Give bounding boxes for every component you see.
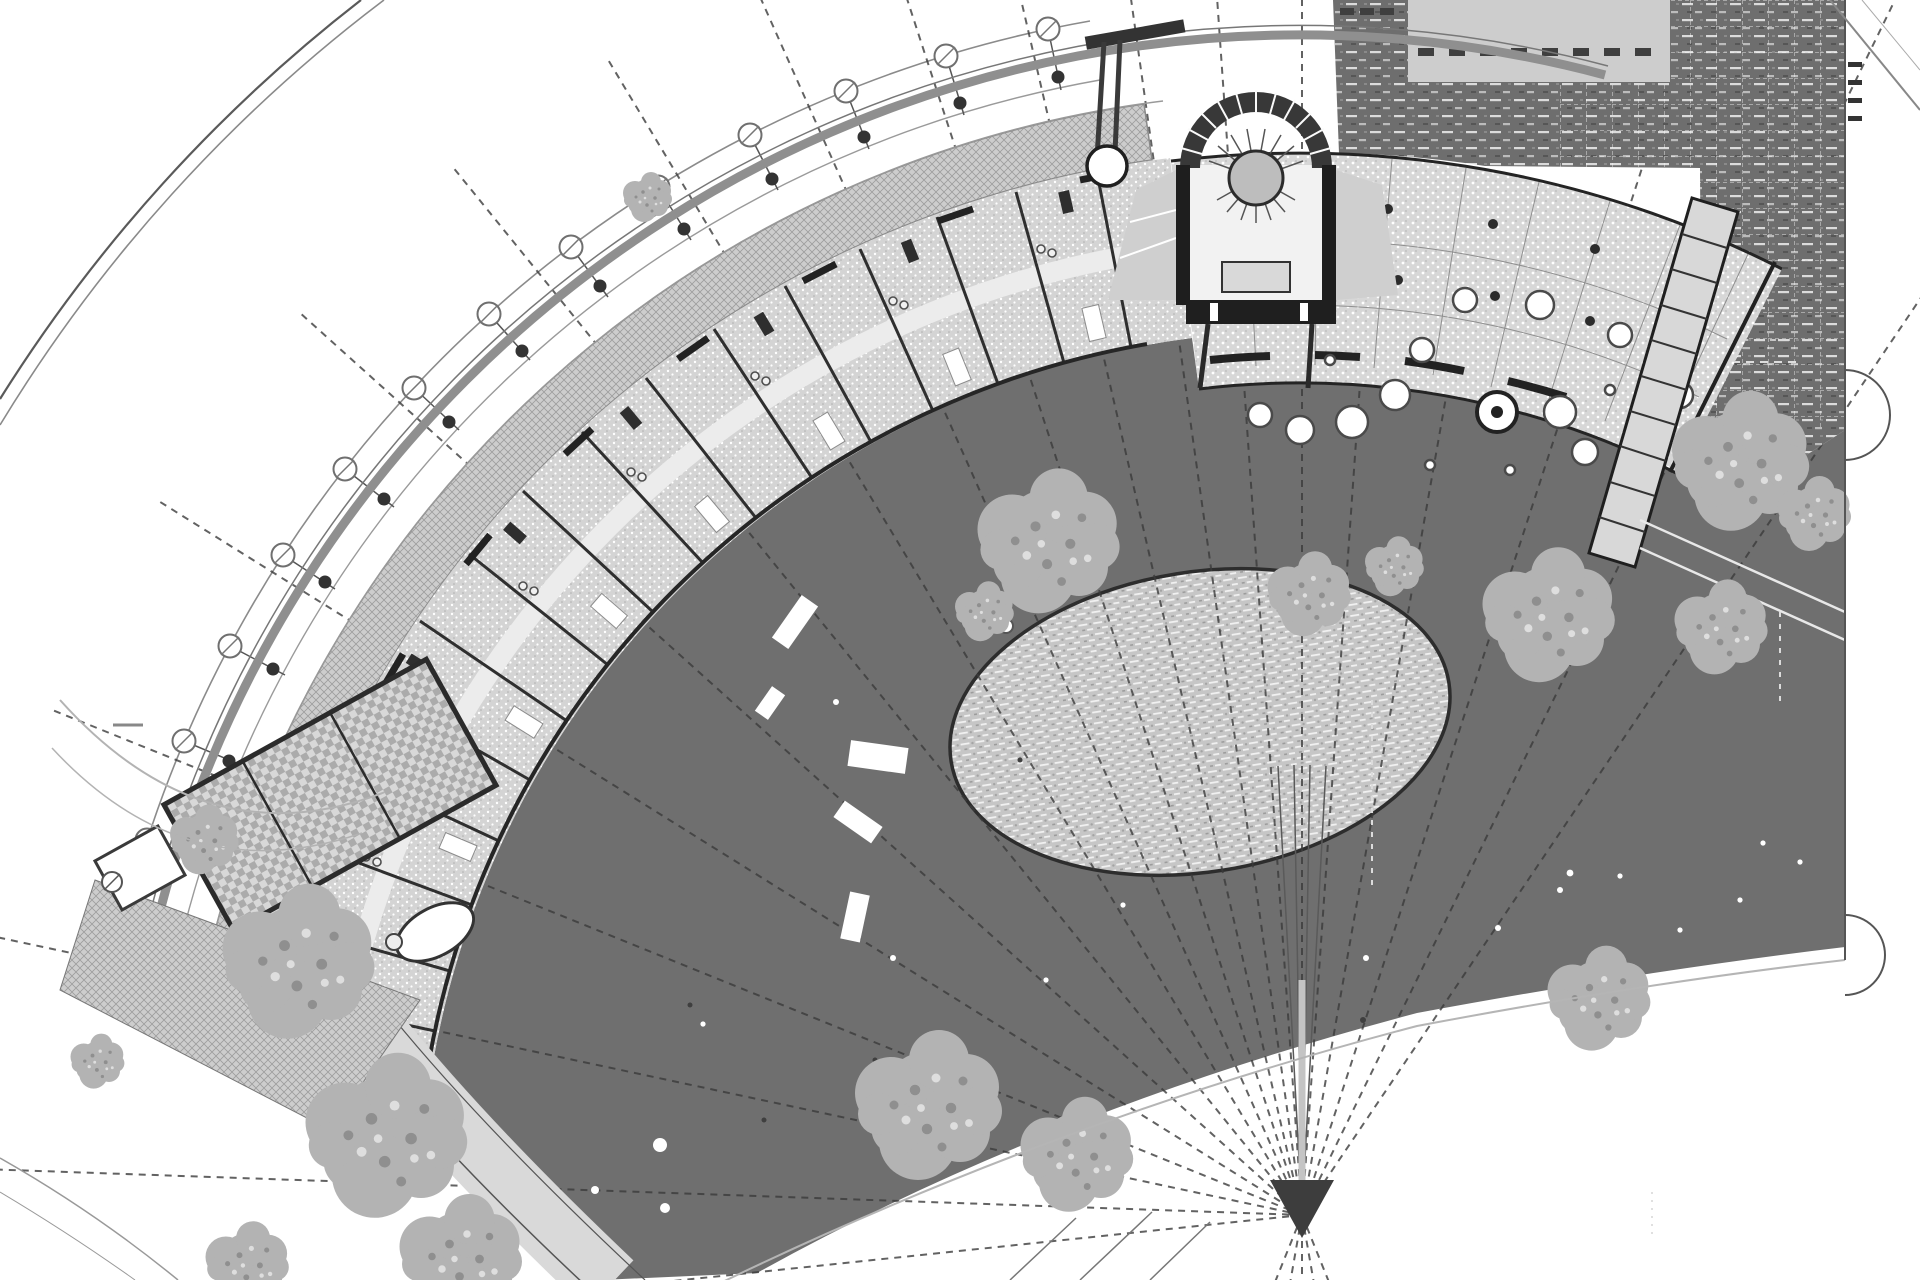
target-circle-dot xyxy=(1491,406,1503,418)
site-plan-canvas xyxy=(0,0,1920,1280)
base-bar-slit-1 xyxy=(1210,303,1218,321)
site-plan-drawing xyxy=(0,0,1920,1280)
rotunda-base-bar xyxy=(1186,300,1336,324)
base-bar-slit-2 xyxy=(1300,303,1308,321)
rotunda-base-platform xyxy=(1222,262,1290,292)
rotunda-right-wall xyxy=(1322,165,1336,305)
rotunda-left-wall xyxy=(1176,165,1190,305)
rotunda-hub-circle xyxy=(1229,151,1283,205)
pillar-circle xyxy=(1087,146,1127,186)
end-block-chair-2 xyxy=(386,934,402,950)
